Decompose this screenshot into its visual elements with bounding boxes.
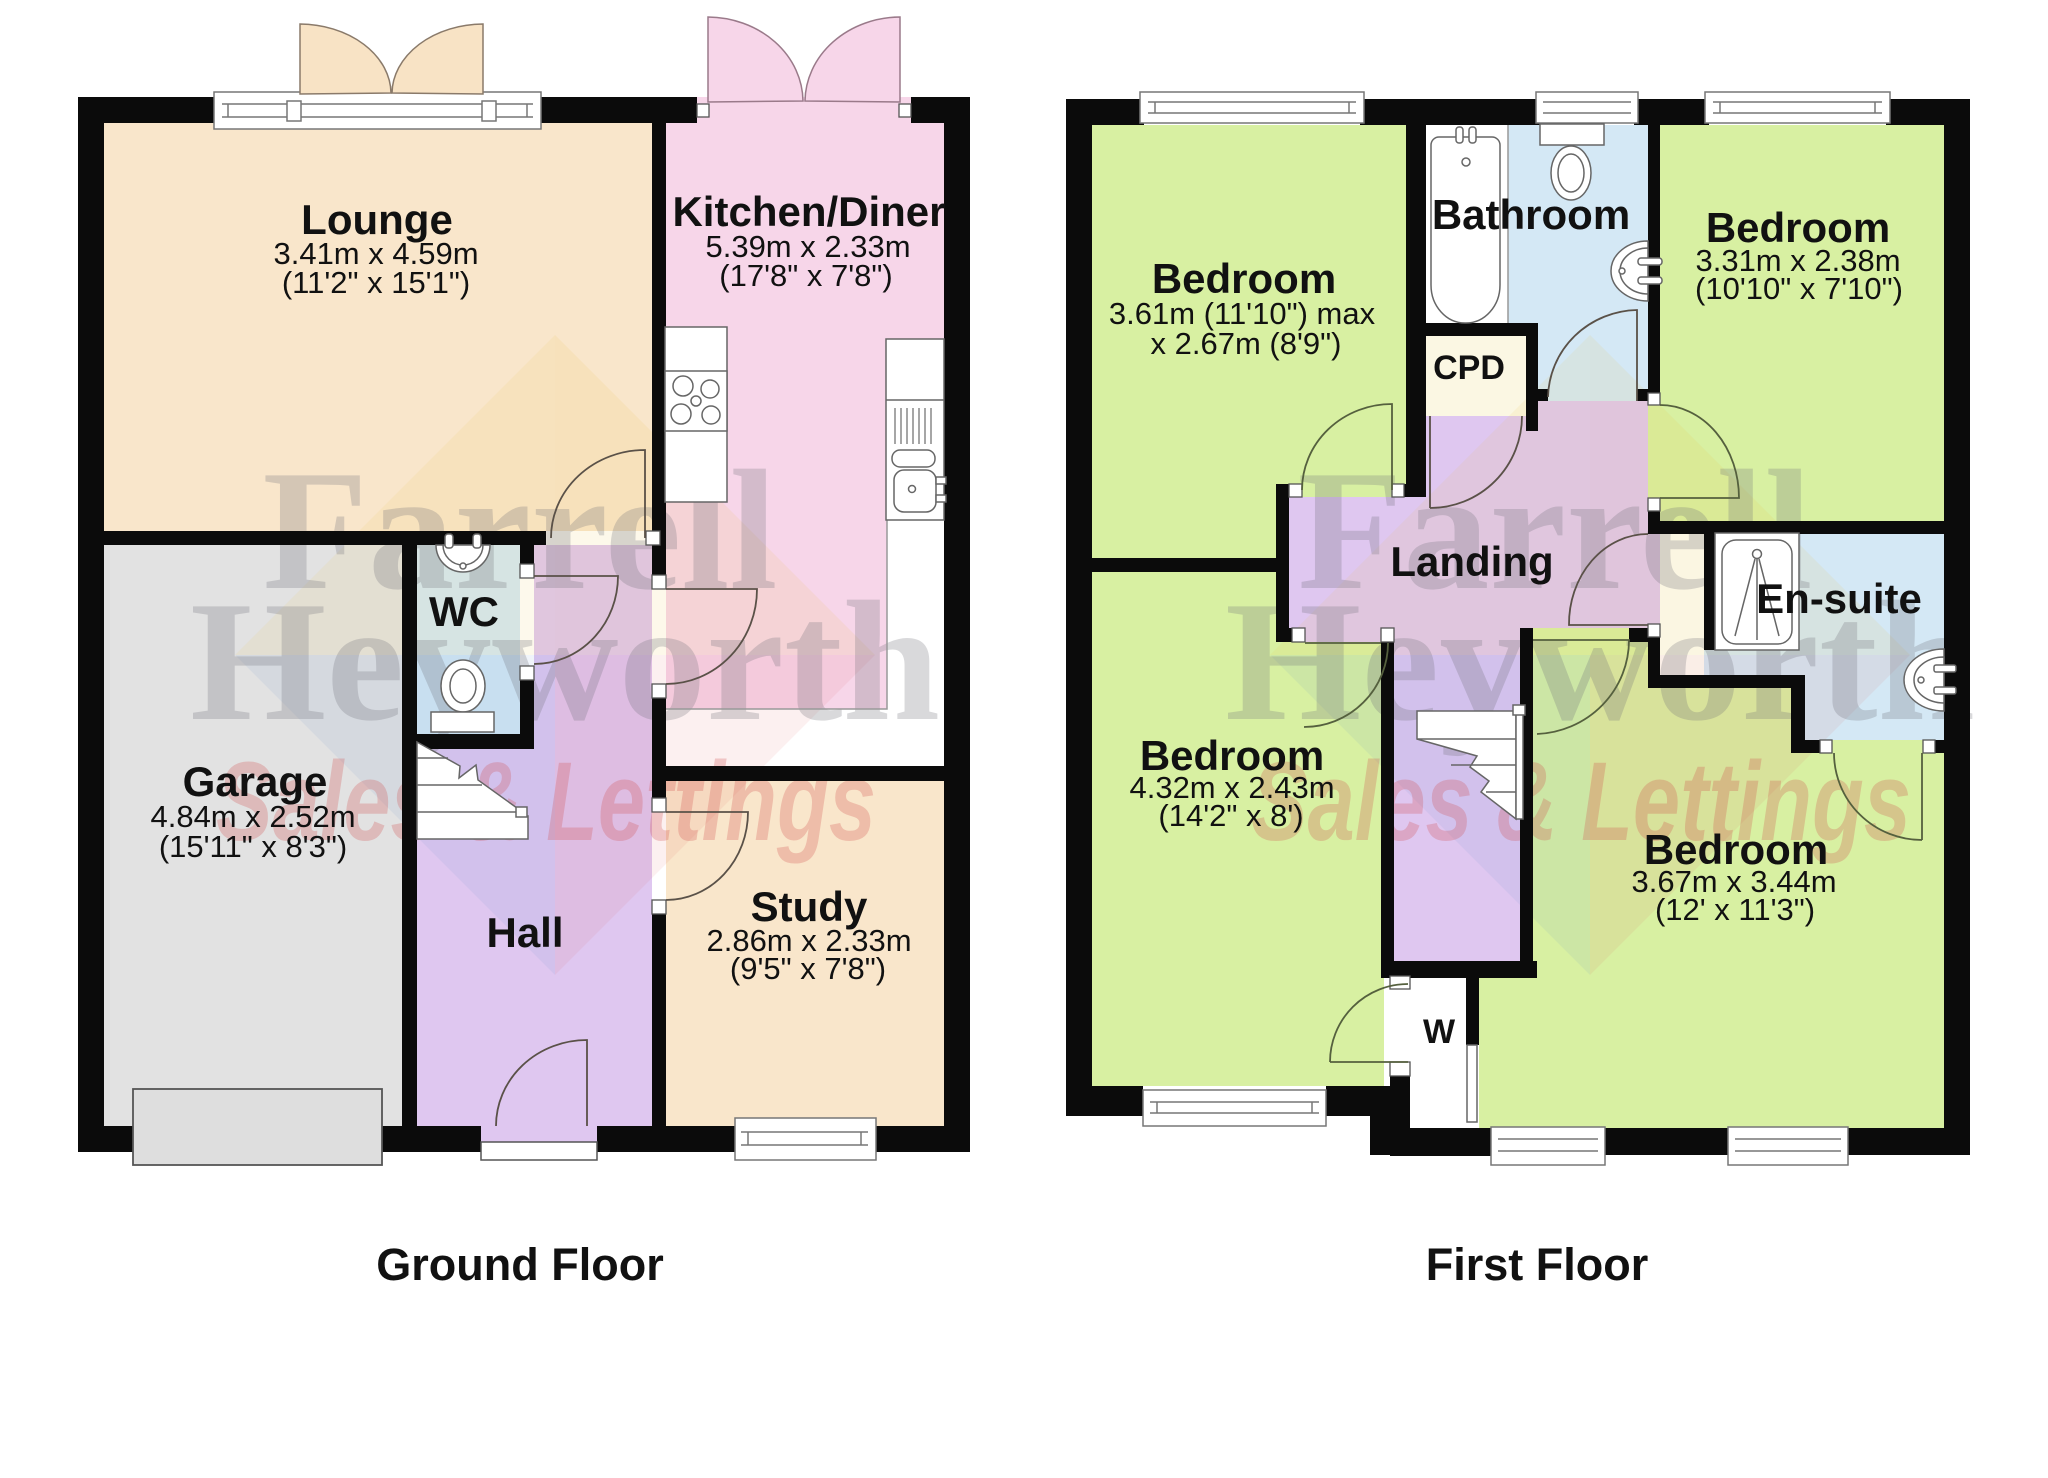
svg-text:(9'5" x 7'8"): (9'5" x 7'8") [730,951,886,986]
svg-text:x 2.67m (8'9"): x 2.67m (8'9") [1151,326,1342,361]
svg-text:Hall: Hall [486,909,563,956]
svg-text:Landing: Landing [1390,538,1553,585]
svg-text:Bathroom: Bathroom [1432,191,1630,238]
svg-text:First Floor: First Floor [1426,1239,1649,1290]
svg-text:(11'2" x 15'1"): (11'2" x 15'1") [282,265,470,300]
svg-text:(12' x 11'3"): (12' x 11'3") [1655,892,1815,927]
svg-text:Heyworth: Heyworth [190,567,940,757]
svg-text:(15'11" x 8'3"): (15'11" x 8'3") [159,829,347,864]
svg-text:En-suite: En-suite [1756,575,1922,622]
svg-text:WC: WC [429,588,499,635]
svg-text:(17'8" x 7'8"): (17'8" x 7'8") [719,258,892,293]
svg-text:Bedroom: Bedroom [1152,255,1336,302]
svg-text:(14'2" x 8'): (14'2" x 8') [1158,798,1303,833]
svg-text:Garage: Garage [183,758,328,805]
svg-text:W: W [1423,1013,1456,1051]
svg-text:Ground Floor: Ground Floor [376,1239,663,1290]
svg-text:(10'10" x 7'10"): (10'10" x 7'10") [1695,271,1903,306]
svg-text:Kitchen/Diner: Kitchen/Diner [672,188,945,235]
svg-text:CPD: CPD [1433,349,1505,387]
